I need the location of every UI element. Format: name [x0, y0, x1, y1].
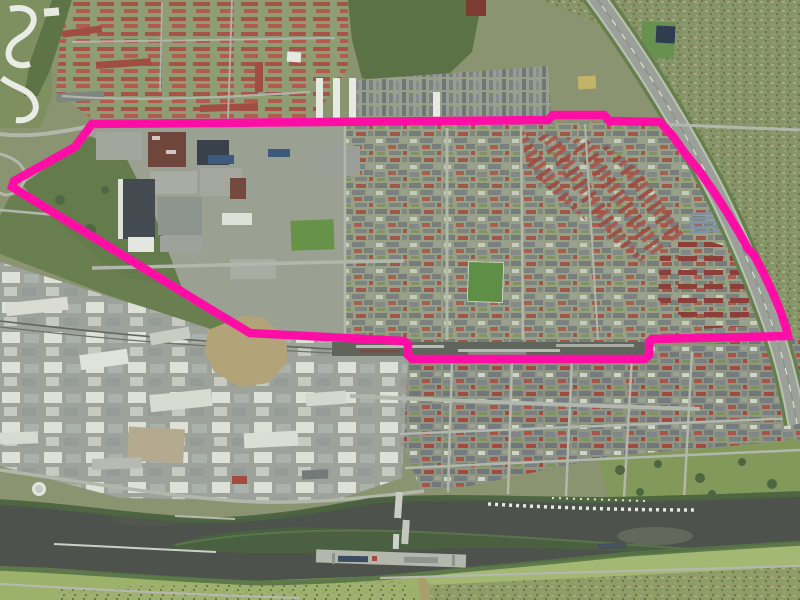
parking-lot	[160, 236, 202, 252]
tree	[708, 490, 716, 498]
big-box-store	[118, 179, 155, 239]
barge-cargo	[372, 556, 377, 561]
red-building	[232, 476, 247, 484]
parking-lot	[316, 146, 360, 176]
tree	[767, 479, 777, 489]
station-platform	[556, 344, 634, 347]
blue-roof-building	[268, 149, 290, 157]
tree	[738, 458, 746, 466]
roof-detail	[166, 150, 176, 154]
big-box-store	[230, 178, 246, 199]
train	[360, 350, 400, 353]
lock-gate	[452, 555, 455, 566]
red-roof-slab	[255, 62, 263, 92]
tree	[615, 465, 625, 475]
parking-lot	[150, 171, 197, 194]
parking-lot	[96, 132, 142, 160]
tower-block	[316, 78, 323, 118]
blue-roof-building	[208, 155, 234, 164]
warehouse	[222, 213, 252, 225]
station-platform	[356, 345, 444, 348]
industrial-shed	[306, 391, 347, 407]
tree	[101, 186, 109, 194]
sand-court	[578, 76, 597, 90]
industrial-shed	[0, 431, 38, 444]
tree	[695, 473, 705, 483]
roof-edge	[118, 179, 123, 239]
football-pitch-center	[467, 261, 503, 302]
sports-pitch-west	[290, 219, 334, 250]
train	[468, 352, 526, 355]
barge	[338, 556, 368, 563]
industrial-shed	[92, 457, 142, 470]
tree	[636, 488, 644, 496]
tower-block	[433, 92, 440, 120]
terrain-layer	[0, 0, 800, 600]
tower-block	[333, 78, 340, 118]
gray-building	[302, 470, 328, 480]
barge	[404, 557, 438, 564]
tree	[55, 195, 65, 205]
big-box-store	[158, 197, 202, 235]
aerial-map-screenshot	[0, 0, 800, 600]
station-platform	[458, 349, 560, 352]
storage-tank-top	[35, 485, 43, 493]
lock-gate	[332, 553, 335, 564]
weir-structure	[393, 534, 400, 549]
tree	[654, 460, 662, 468]
warehouse	[128, 237, 154, 252]
industrial-shed	[244, 431, 299, 449]
white-gable-building	[287, 52, 302, 63]
tower-block	[349, 78, 356, 118]
sports-courts	[656, 26, 676, 44]
aerial-photo	[0, 0, 800, 600]
white-building	[44, 7, 60, 16]
dark-red-hall	[466, 0, 486, 16]
roof-detail	[152, 136, 160, 140]
river-sediment	[617, 527, 693, 545]
